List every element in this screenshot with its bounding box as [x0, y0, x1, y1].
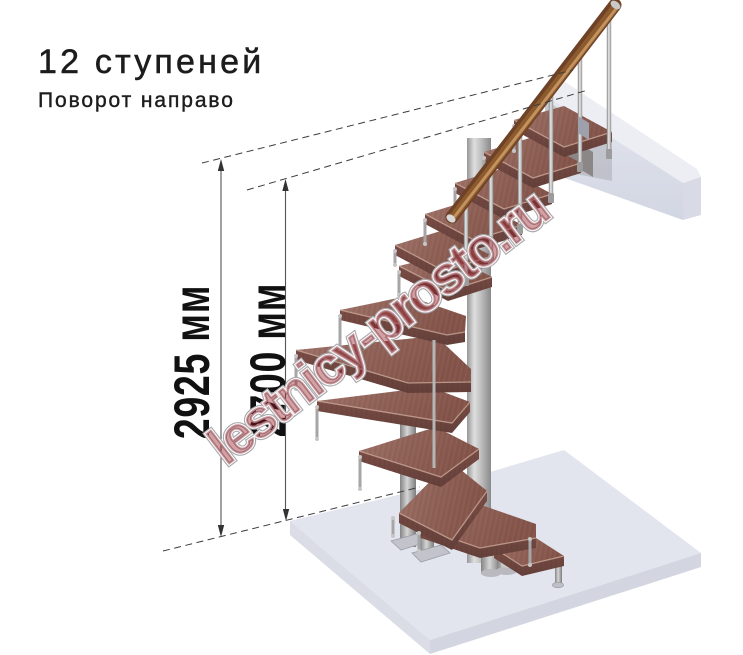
- svg-text:12 ступеней: 12 ступеней: [38, 43, 264, 81]
- svg-text:Поворот направо: Поворот направо: [38, 89, 235, 112]
